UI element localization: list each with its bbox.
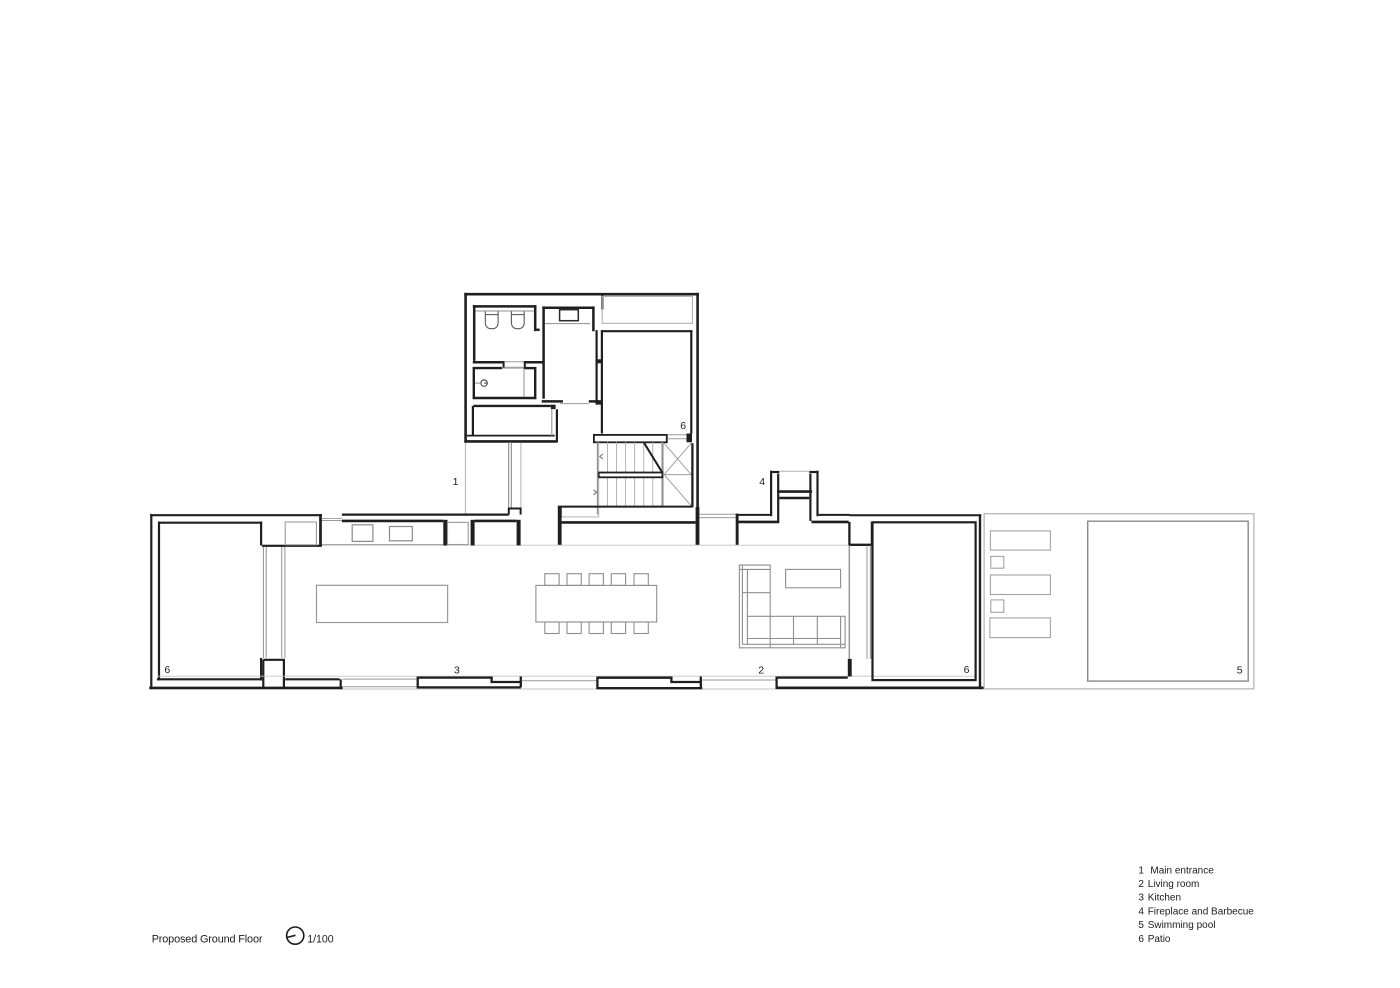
svg-text:Living room: Living room	[1148, 879, 1200, 890]
svg-text:3: 3	[1138, 893, 1144, 904]
svg-text:6: 6	[680, 420, 686, 432]
svg-text:5: 5	[1237, 664, 1243, 676]
svg-text:6: 6	[964, 664, 970, 676]
svg-text:6: 6	[164, 664, 170, 676]
svg-text:Swimming pool: Swimming pool	[1148, 920, 1216, 931]
svg-text:4: 4	[1138, 906, 1144, 917]
svg-text:Main entrance: Main entrance	[1150, 865, 1214, 876]
svg-text:1: 1	[1138, 865, 1144, 876]
svg-text:Patio: Patio	[1148, 934, 1171, 945]
svg-text:5: 5	[1138, 920, 1144, 931]
svg-text:4: 4	[759, 476, 765, 488]
svg-text:Fireplace and Barbecue: Fireplace and Barbecue	[1148, 906, 1255, 917]
svg-text:Kitchen: Kitchen	[1148, 893, 1181, 904]
svg-text:6: 6	[1138, 934, 1144, 945]
svg-text:1/100: 1/100	[307, 934, 334, 946]
svg-text:2: 2	[1138, 879, 1144, 890]
svg-text:Proposed Ground Floor: Proposed Ground Floor	[152, 934, 263, 946]
svg-text:1: 1	[453, 476, 459, 488]
svg-text:2: 2	[758, 665, 764, 677]
svg-text:3: 3	[454, 664, 460, 676]
